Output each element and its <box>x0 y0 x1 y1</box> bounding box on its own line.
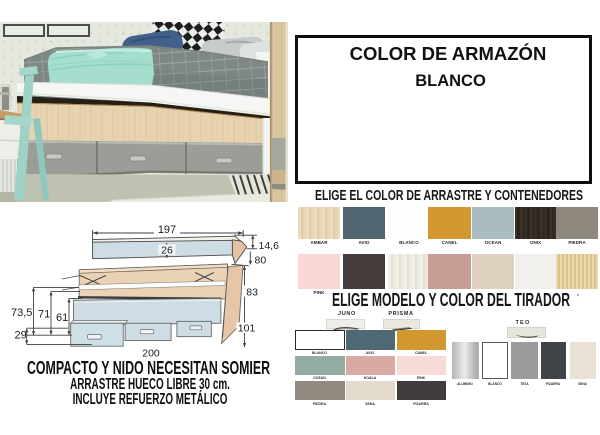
svg-text:83: 83 <box>246 287 258 299</box>
svg-text:101: 101 <box>238 323 256 335</box>
svg-text:73,5: 73,5 <box>11 307 32 319</box>
svg-text:80: 80 <box>255 254 267 266</box>
svg-text:29: 29 <box>15 329 27 341</box>
svg-text:61: 61 <box>56 312 68 324</box>
svg-text:26: 26 <box>161 245 173 257</box>
svg-text:71: 71 <box>38 309 50 321</box>
svg-text:14,6: 14,6 <box>259 240 280 252</box>
svg-text:197: 197 <box>158 224 176 236</box>
